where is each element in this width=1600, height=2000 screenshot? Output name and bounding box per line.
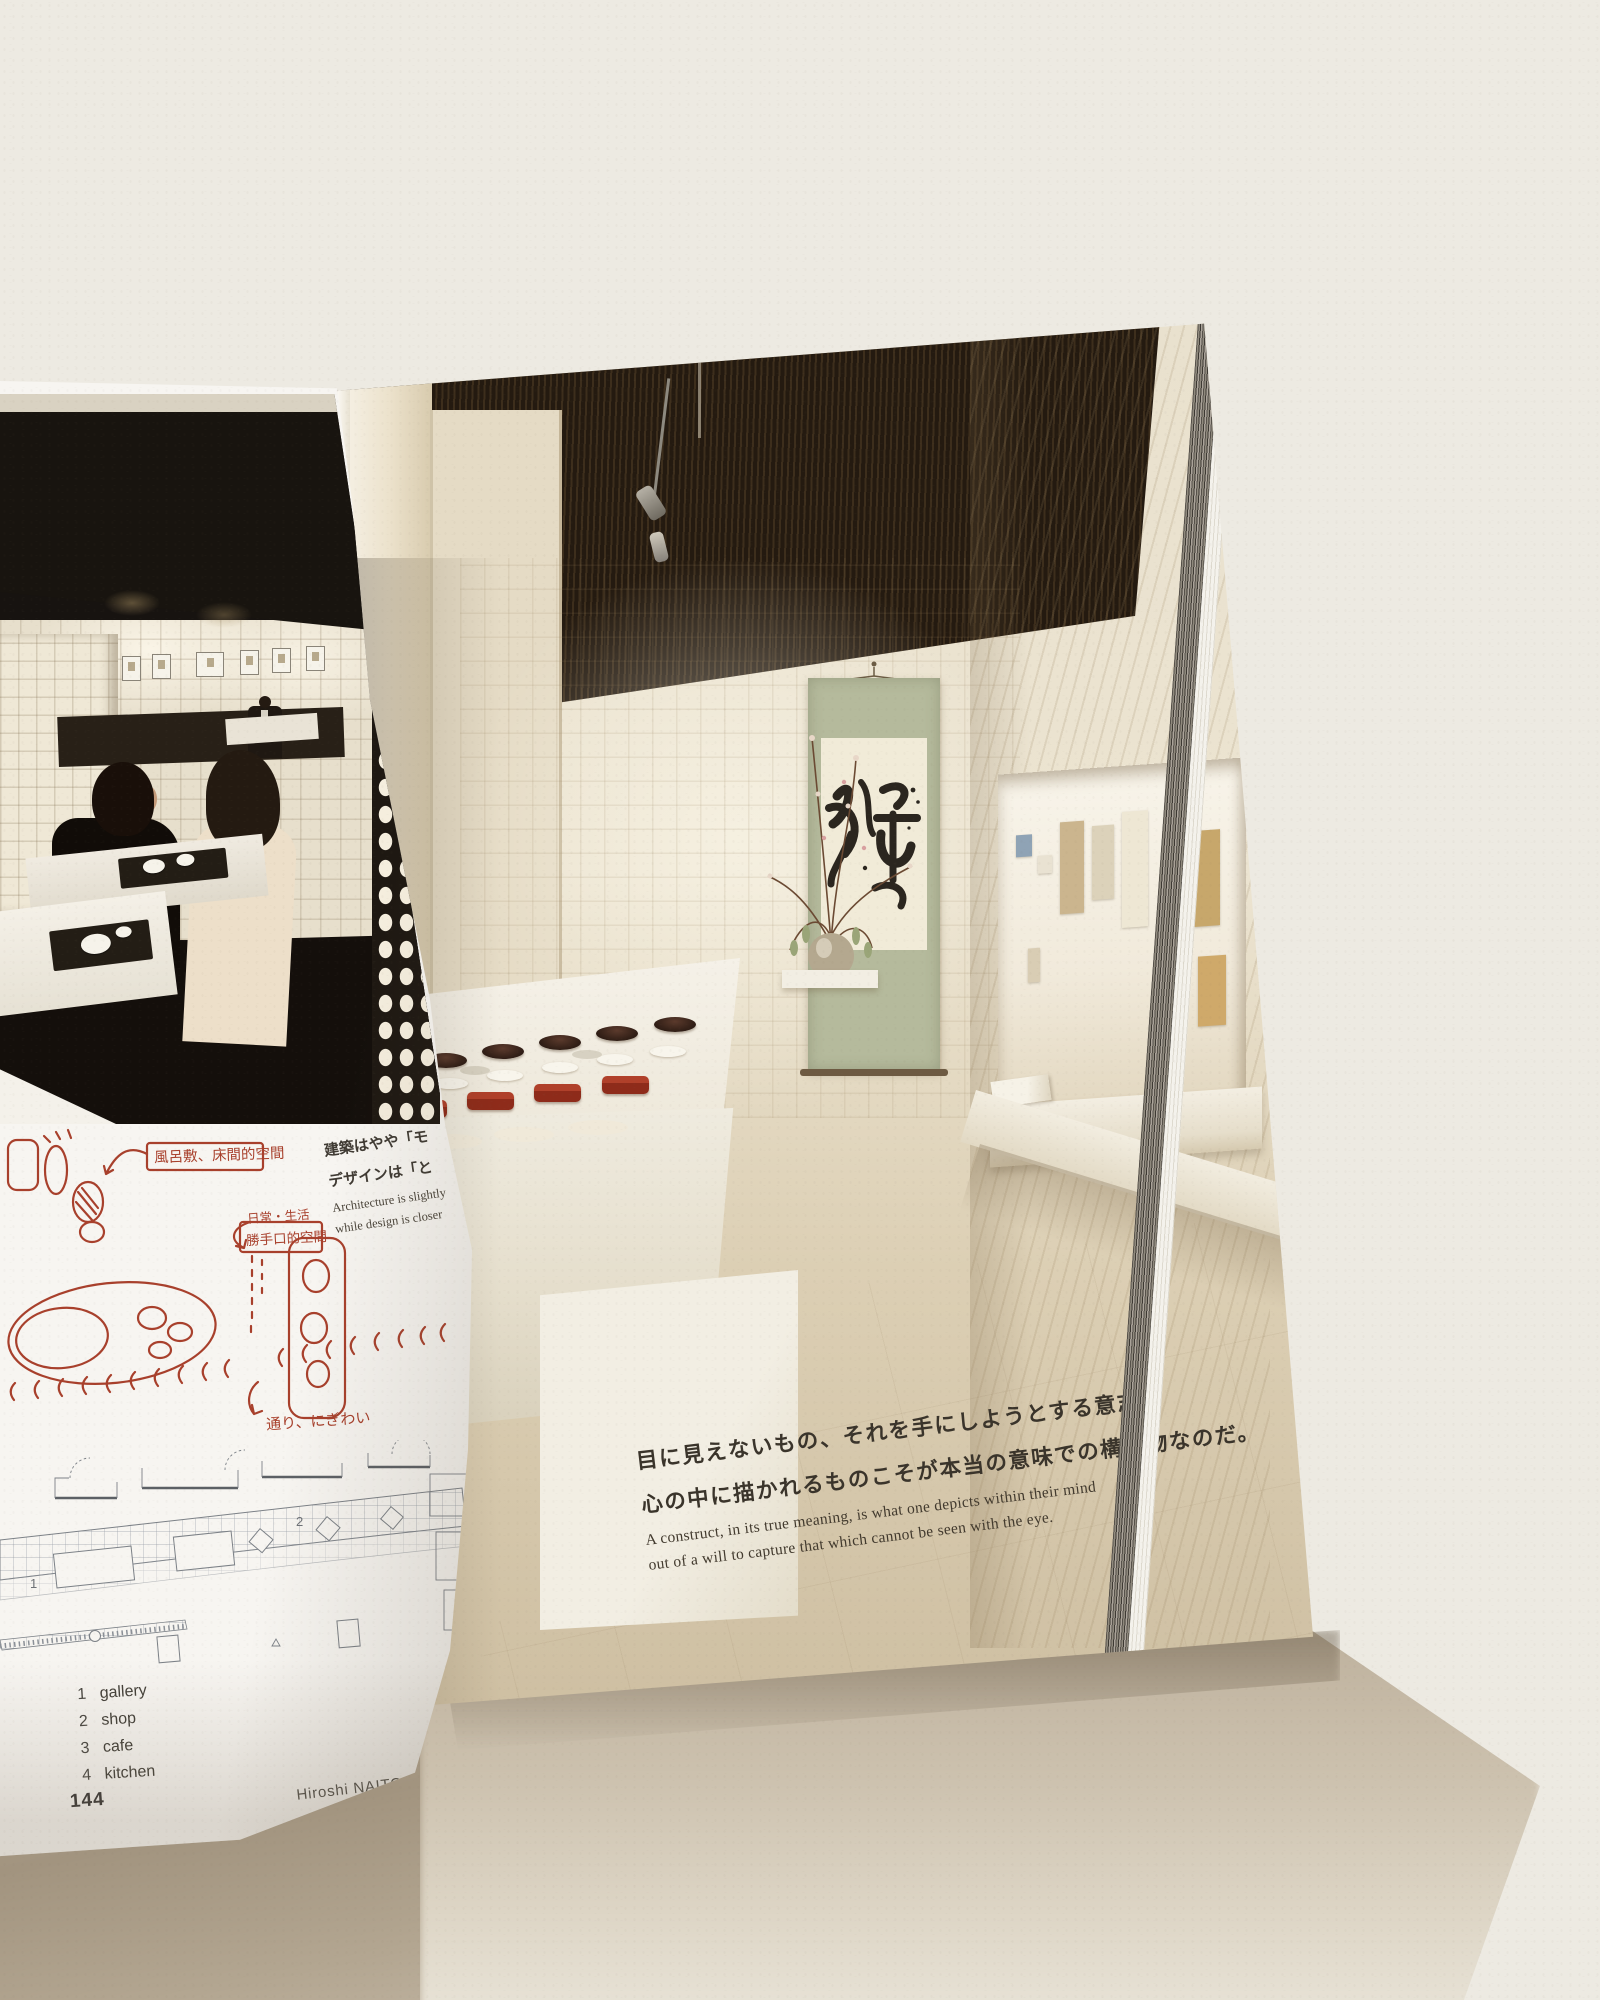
lighting-track xyxy=(698,342,701,438)
white-plate xyxy=(542,1062,578,1073)
vase-shelf xyxy=(782,970,878,988)
oval-plate xyxy=(568,1120,628,1135)
white-plate xyxy=(650,1046,686,1057)
oval-plate xyxy=(494,1127,554,1142)
artwork-small-strip xyxy=(1028,948,1040,983)
lacquer-bowl xyxy=(539,1035,581,1050)
red-lacquer-box xyxy=(534,1084,581,1102)
lacquer-bowl xyxy=(596,1026,638,1041)
artwork-scroll-sheet xyxy=(1122,810,1148,928)
white-plate xyxy=(597,1054,633,1065)
red-lacquer-box xyxy=(602,1076,649,1094)
scroll-hanging-cord xyxy=(808,636,940,682)
artwork-lower-gold xyxy=(1198,955,1226,1027)
scroll-roller-bar xyxy=(800,1069,948,1076)
photo-open-book-spread: 夜の梅 xyxy=(0,0,1600,2000)
lacquer-bowl xyxy=(654,1017,696,1032)
artwork-blue xyxy=(1016,834,1032,857)
artwork-strip-tan xyxy=(1060,821,1084,915)
flower-arrangement xyxy=(760,698,920,998)
display-niche xyxy=(998,757,1246,1112)
glass-dish xyxy=(572,1050,602,1059)
artwork-strip-beige xyxy=(1092,825,1114,901)
right-page: 夜の梅 xyxy=(330,318,1320,1718)
artwork-card xyxy=(1038,855,1052,874)
